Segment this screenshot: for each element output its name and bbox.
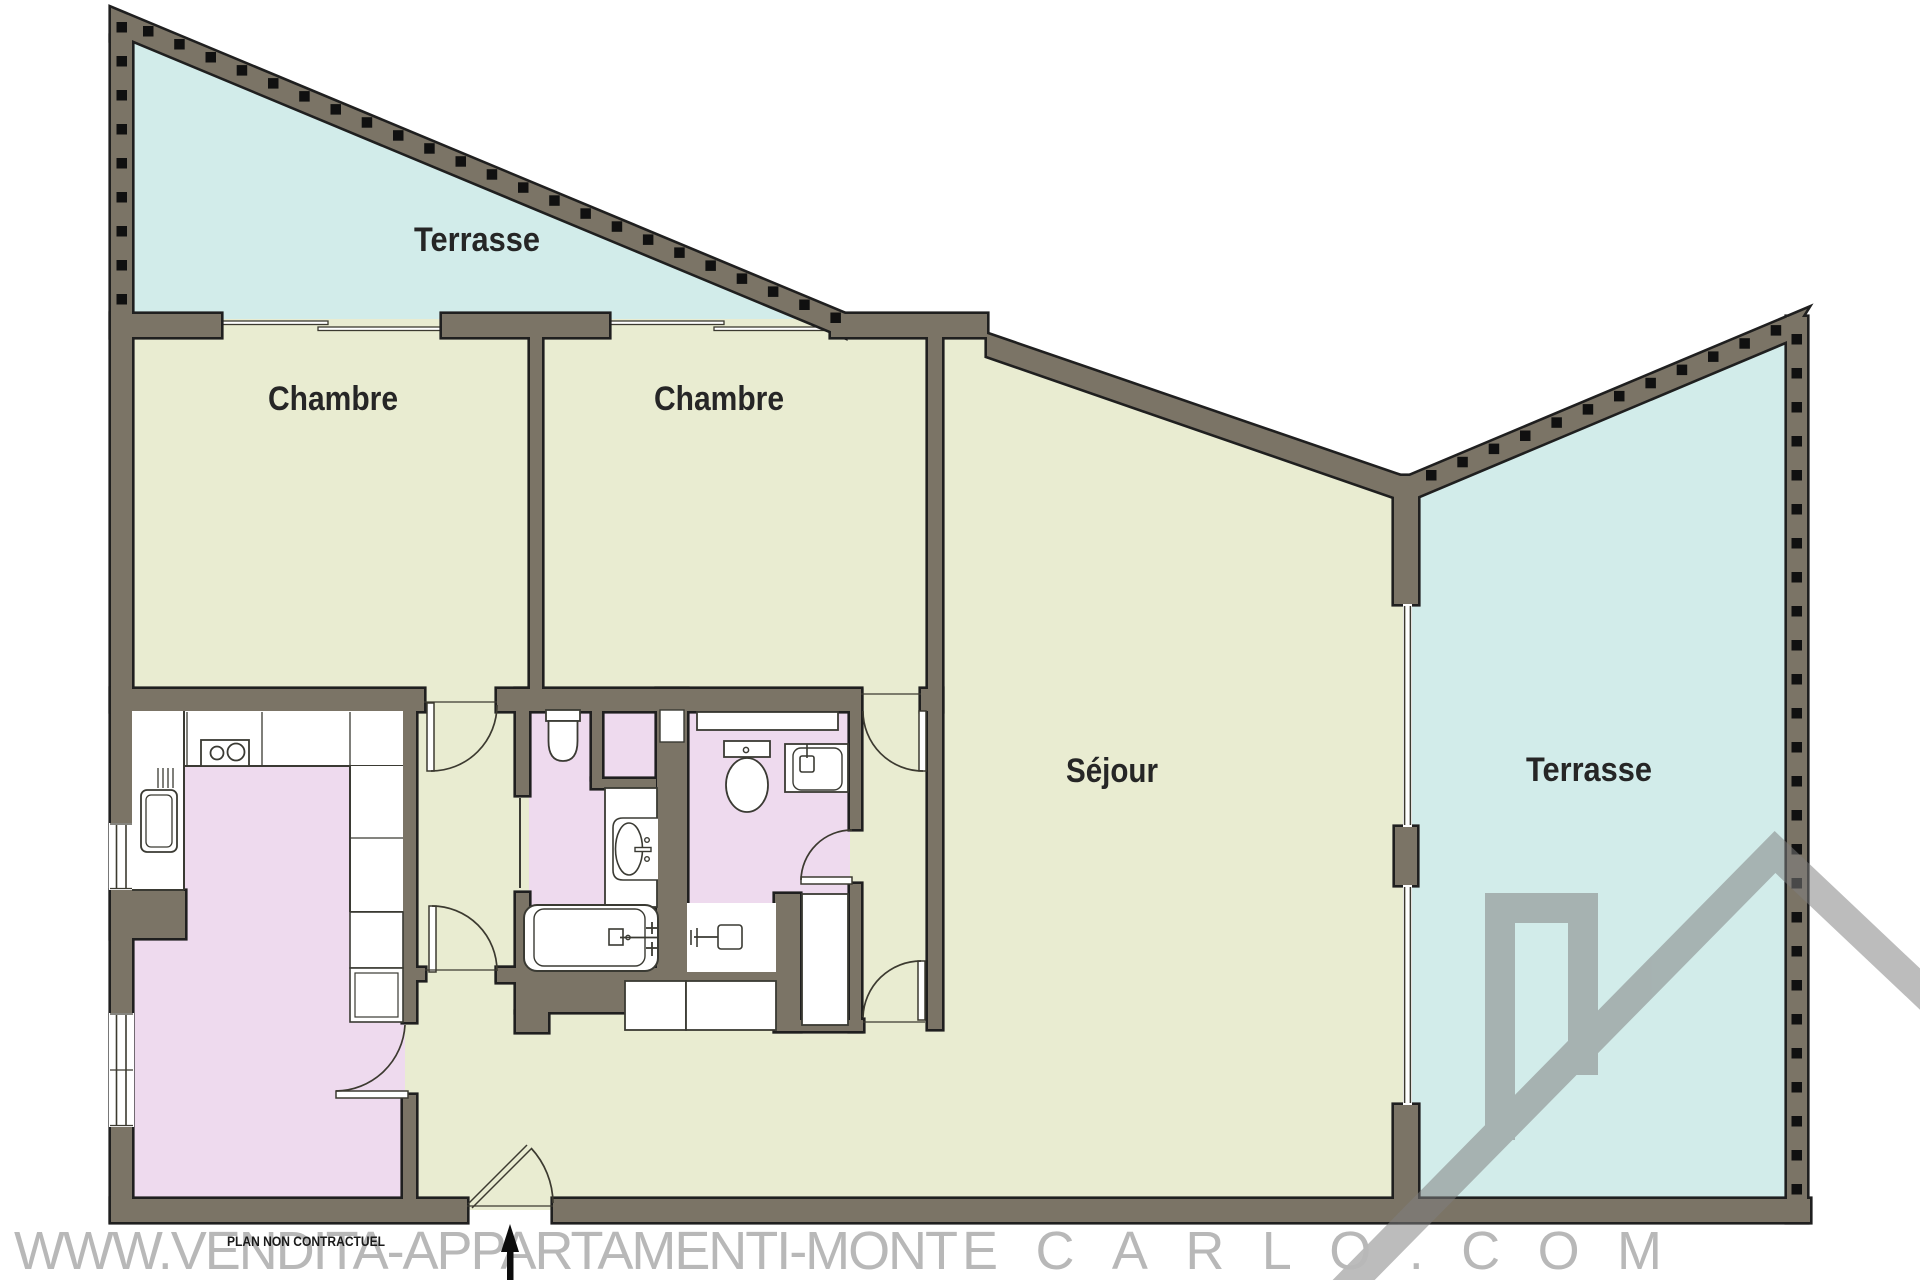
svg-text:Chambre: Chambre (654, 380, 784, 418)
svg-text:Séjour: Séjour (1066, 752, 1158, 790)
svg-text:PLAN NON CONTRACTUEL: PLAN NON CONTRACTUEL (227, 1234, 385, 1249)
svg-text:WWW.VENDITA-APPARTAMENTI-MONTE: WWW.VENDITA-APPARTAMENTI-MONTECARLO.COM (14, 1221, 1662, 1280)
svg-text:Terrasse: Terrasse (1526, 751, 1652, 789)
svg-text:Chambre: Chambre (268, 380, 398, 418)
svg-text:Terrasse: Terrasse (414, 221, 540, 259)
